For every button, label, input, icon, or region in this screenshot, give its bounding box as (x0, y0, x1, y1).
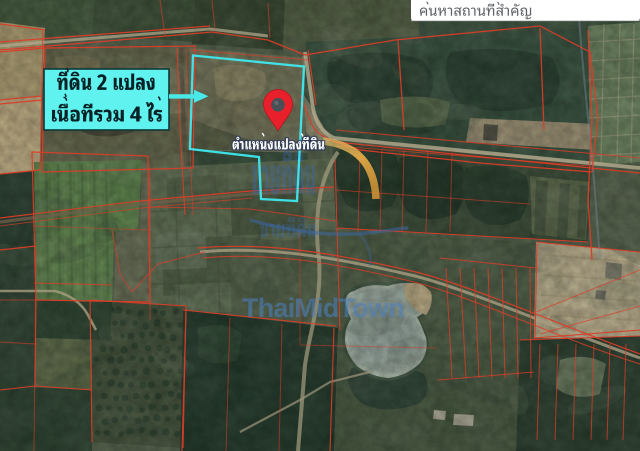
svg-text:ThaiMidTown: ThaiMidTown (242, 293, 404, 323)
